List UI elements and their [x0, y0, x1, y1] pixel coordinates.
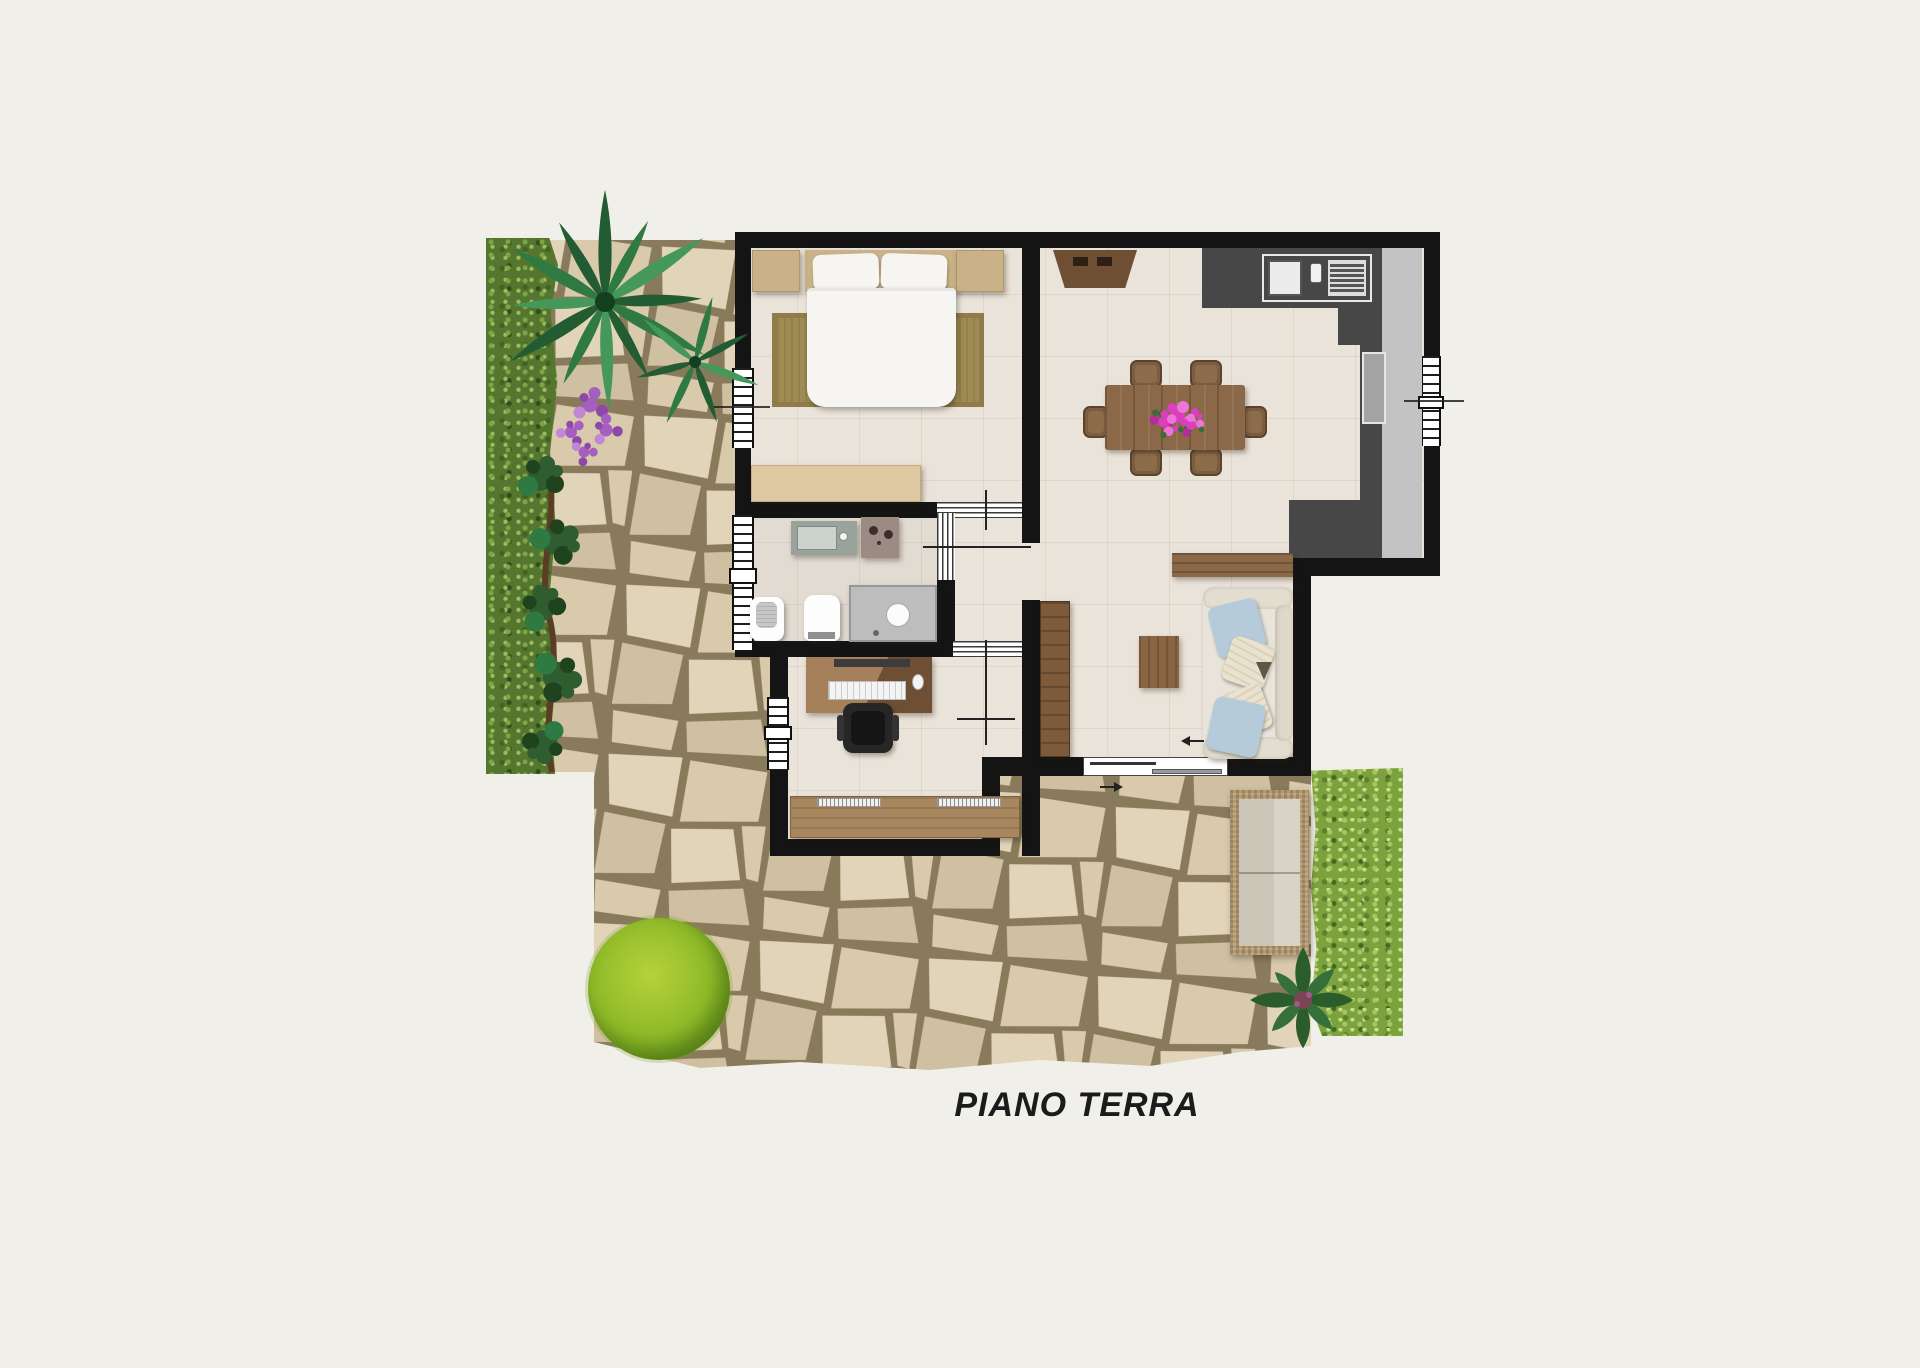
table-flowers	[1143, 401, 1210, 443]
palm-tree	[506, 190, 707, 409]
plants-overlay	[0, 0, 1920, 1368]
floor-plan: PIANO TERRA	[0, 0, 1920, 1368]
palm-tree-small	[636, 296, 760, 425]
patio-plant	[1250, 947, 1353, 1048]
page-title: PIANO TERRA	[927, 1086, 1227, 1125]
